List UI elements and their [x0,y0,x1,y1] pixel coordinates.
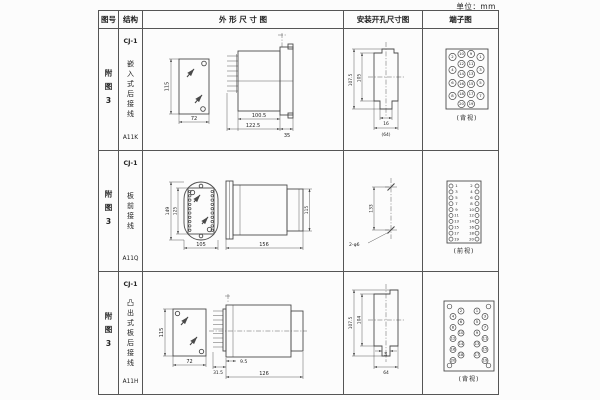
fig-no-cell: 附图3 [99,151,119,272]
side-view: 9.5 31.5 126 [209,294,307,379]
terminal-circle [189,220,191,222]
dim-label: 115 [304,206,310,215]
terminal-number: 10 [459,51,464,56]
terminal-caption: (前视) [454,247,475,255]
front-view: 115 72 [159,309,206,367]
terminal-number: 1 [479,54,482,59]
dimension-table: 图号 结构 外 形 尺 寸 图 安装开孔尺寸图 端子图 附图3 CJ-1 嵌入式… [98,10,499,395]
terminal-number: 9 [455,207,458,212]
terminal-cell-a11q: (前视) 1357911131517192468101214161820 [423,151,498,272]
terminal-diagram-a11h: (背视) 2610141848121620159131737111519 [423,272,498,394]
terminal-number: 17 [475,352,480,357]
terminal-circle [449,196,453,200]
dim-label: 126 [259,371,269,377]
terminal-number: 12 [469,213,474,218]
front-view: 149 125 105 [165,182,218,250]
terminal-number: 17 [454,230,459,235]
terminal-circle [449,219,453,223]
terminal-circle [211,220,213,222]
dim-label: 105 [196,242,206,248]
terminal-circle [211,212,213,214]
dim-label: 149 [165,207,171,216]
dim-label: 35 [284,133,290,139]
model-label: CJ-1 [124,38,138,45]
dim-label: 31.5 [213,370,223,376]
install-cell-a11h: 107.5 104 16 64 [344,272,423,394]
dim-label: 107.5 [348,317,354,330]
fig-no-cell: 附图3 [99,272,119,394]
outline-drawing-a11k: 115 72 100.5 122.5 [143,29,344,151]
terminal-circle [449,184,453,188]
dim-label: 72 [191,116,197,122]
dim-label: 100.5 [252,113,266,119]
terminal-circle [475,196,479,200]
terminal-number: 3 [484,314,487,319]
terminal-diagram-a11k: (背视) 2468101214161820911131517191357 [423,29,498,151]
terminal-cell-a11k: (背视) 2468101214161820911131517191357 [423,29,498,151]
terminal-number: 14 [459,341,464,346]
dim-label: 107.5 [348,74,354,87]
header-fig-no: 图号 [99,11,119,29]
terminal-circle [189,195,191,197]
terminal-number: 12 [451,336,456,341]
terminal-number: 17 [469,91,474,96]
terminal-circle [475,208,479,212]
terminal-circle [449,214,453,218]
terminal-circle [211,203,213,205]
code-label: A11H [123,379,139,385]
terminal-circle [449,190,453,194]
terminal-number: 11 [469,61,474,66]
fig-no-cell: 附图3 [99,29,119,151]
terminal-number: 15 [454,225,459,230]
terminal-circle [449,208,453,212]
dim-label: 133 [368,204,374,213]
terminal-circle [475,231,479,235]
terminal-circle [475,184,479,188]
install-cutout-a11k: 107.5 105 16 (64) [344,29,423,151]
terminal-number: 4 [452,314,455,319]
terminal-number: 12 [459,61,464,66]
fig-no-label: 附图3 [103,190,114,232]
dim-label: (64) [381,132,390,138]
install-cell-a11k: 107.5 105 16 (64) [344,29,423,151]
header-outline: 外 形 尺 寸 图 [143,11,344,29]
terminal-number: 6 [470,195,473,200]
terminal-number: 19 [454,236,459,241]
terminal-number: 7 [455,201,458,206]
terminal-number: 9 [476,330,479,335]
terminal-number: 14 [469,219,474,224]
terminal-number: 20 [459,101,464,106]
mount-hole [447,363,452,368]
fig-no-label: 附图3 [103,312,114,354]
terminal-number: 16 [469,225,474,230]
terminal-caption: (背视) [457,114,478,122]
terminal-number: 13 [454,219,459,224]
dim-label: 9.5 [240,359,247,365]
structure-cell-a11h: CJ-1 凸出式板后接线 A11H [119,272,143,394]
terminal-number: 8 [470,201,473,206]
terminal-circle [475,190,479,194]
terminal-circle [211,195,213,197]
code-label: A11K [123,135,138,141]
terminal-number: 4 [451,67,454,72]
terminal-circle [475,225,479,229]
model-label: CJ-1 [124,160,138,167]
terminal-number: 11 [483,336,488,341]
outline-drawing-a11h: 115 72 9.5 31.5 [143,272,344,394]
terminal-circle [189,212,191,214]
terminal-number: 18 [469,230,474,235]
terminal-circle [211,225,213,227]
hole-spec-label: 2-φ6 [349,242,360,248]
terminal-number: 5 [476,319,479,324]
terminal-number: 5 [455,195,458,200]
front-view: 115 72 [165,59,210,124]
terminal-number: 6 [451,80,454,85]
terminal-number: 18 [459,352,464,357]
terminal-circle [211,208,213,210]
terminal-number: 9 [470,51,473,56]
outline-cell-a11k: 115 72 100.5 122.5 [143,29,344,151]
terminal-cell-a11h: (背视) 2610141848121620159131737111519 [423,272,498,394]
dim-label: 105 [356,74,362,83]
terminal-circle [449,225,453,229]
terminal-circle [189,216,191,218]
terminal-number: 7 [484,325,487,330]
terminal-number: 14 [459,71,464,76]
outline-cell-a11q: 149 125 105 156 115 [143,151,344,272]
terminal-number: 16 [451,347,456,352]
terminal-circle [449,237,453,241]
terminal-circle [475,214,479,218]
install-drawing-a11q: 133 2-φ6 [344,151,423,272]
terminal-circle [449,231,453,235]
terminal-number: 5 [479,80,482,85]
dim-label: 72 [186,359,192,365]
terminal-number: 18 [459,91,464,96]
terminal-number: 1 [455,183,458,188]
terminal-number: 20 [451,358,456,363]
terminal-number: 3 [455,189,458,194]
header-terminal: 端子图 [423,11,498,29]
structure-cell-a11q: CJ-1 板前接线 A11Q [119,151,143,272]
terminal-circle [189,199,191,201]
mount-hole [486,304,491,309]
model-label: CJ-1 [124,281,138,288]
header-structure: 结构 [119,11,143,29]
terminal-circle [449,202,453,206]
terminal-caption: (背视) [459,375,480,383]
terminal-number: 7 [479,93,482,98]
terminal-number: 13 [469,71,474,76]
terminal-circle [189,225,191,227]
terminal-circle [475,237,479,241]
structure-label: 凸出式板后接线 [126,299,136,369]
terminal-number: 15 [469,81,474,86]
mount-hole [486,363,491,368]
terminal-number: 10 [459,330,464,335]
terminal-number: 10 [469,207,474,212]
terminal-number: 6 [460,319,463,324]
side-view: 100.5 122.5 35 [227,33,293,139]
terminal-number: 2 [460,308,463,313]
terminal-number: 16 [459,81,464,86]
header-install: 安装开孔尺寸图 [344,11,423,29]
terminal-circle [189,208,191,210]
dim-label: 115 [165,82,171,92]
dim-label: 16 [383,121,389,127]
side-view: 156 115 [226,181,312,250]
dim-label: 115 [159,328,165,338]
fig-no-label: 附图3 [103,69,114,111]
terminal-number: 2 [451,54,454,59]
terminal-circle [475,202,479,206]
dim-label: 125 [172,207,178,216]
dim-label: 64 [383,370,389,376]
install-cutout-a11h: 107.5 104 16 64 [344,272,423,394]
terminal-circle [211,190,213,192]
terminal-number: 11 [454,213,459,218]
terminal-number: 19 [469,101,474,106]
terminal-circle [211,199,213,201]
structure-cell-a11k: CJ-1 嵌入式后接线 A11K [119,29,143,151]
mount-hole [447,304,452,309]
terminal-diagram-a11q: (前视) 1357911131517192468101214161820 [423,151,498,272]
terminal-number: 3 [479,67,482,72]
dim-label: 104 [356,316,362,325]
terminal-number: 2 [470,183,473,188]
terminal-circle [189,203,191,205]
terminal-number: 4 [470,189,473,194]
terminal-number: 15 [483,347,488,352]
terminal-circle [211,216,213,218]
outline-drawing-a11q: 149 125 105 156 115 [143,151,344,272]
terminal-number: 13 [475,341,480,346]
terminal-number: 1 [476,308,479,313]
install-cell-a11q: 133 2-φ6 [344,151,423,272]
terminal-number: 8 [451,93,454,98]
outline-cell-a11h: 115 72 9.5 31.5 [143,272,344,394]
terminal-number: 19 [483,358,488,363]
terminal-number: 8 [452,325,455,330]
dim-label: 16 [384,351,388,356]
code-label: A11Q [123,256,139,262]
terminal-circle [189,229,191,231]
dim-label: 122.5 [246,123,260,129]
terminal-number: 20 [469,236,474,241]
dim-label: 156 [259,242,269,248]
terminal-circle [475,219,479,223]
structure-label: 嵌入式后接线 [126,60,136,120]
structure-label: 板前接线 [126,192,136,232]
